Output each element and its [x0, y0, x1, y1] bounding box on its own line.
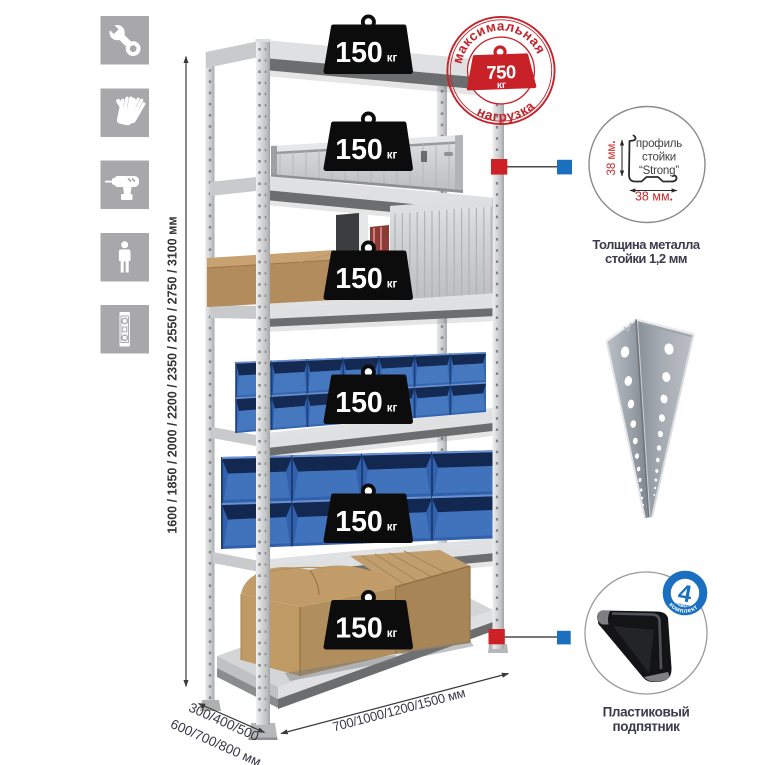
- svg-text:1600 / 1850 / 2000 / 2200 / 23: 1600 / 1850 / 2000 / 2200 / 2350 / 2550 …: [166, 216, 180, 533]
- svg-text:кг: кг: [497, 80, 507, 91]
- svg-text:Пластиковый: Пластиковый: [603, 705, 690, 720]
- svg-text:38 мм.: 38 мм.: [606, 140, 618, 175]
- svg-text:профиль: профиль: [636, 138, 682, 150]
- svg-text:подпятник: подпятник: [612, 719, 680, 734]
- svg-text:38 мм.: 38 мм.: [635, 190, 673, 204]
- svg-text:Толщина металла: Толщина металла: [592, 237, 700, 252]
- svg-text:стойки: стойки: [642, 152, 676, 164]
- svg-text:“Strong”: “Strong”: [639, 165, 679, 177]
- svg-text:стойки 1,2 мм: стойки 1,2 мм: [605, 251, 687, 266]
